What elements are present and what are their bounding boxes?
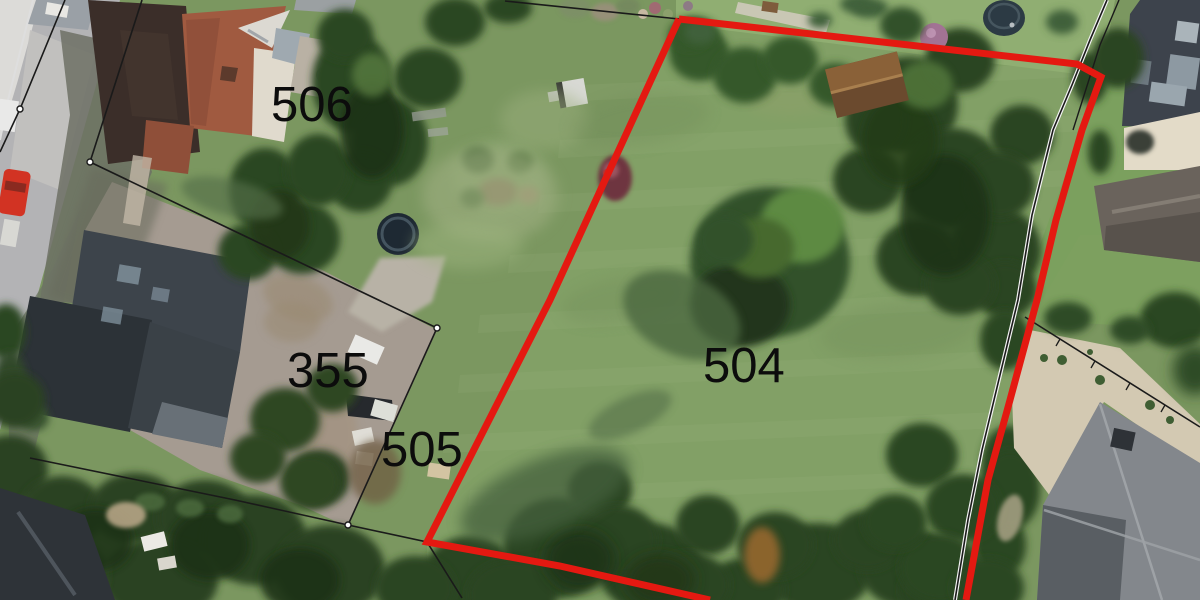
svg-text:505: 505 — [381, 423, 463, 477]
svg-text:506: 506 — [271, 78, 353, 132]
svg-text:355: 355 — [287, 344, 369, 398]
svg-text:504: 504 — [703, 339, 785, 393]
